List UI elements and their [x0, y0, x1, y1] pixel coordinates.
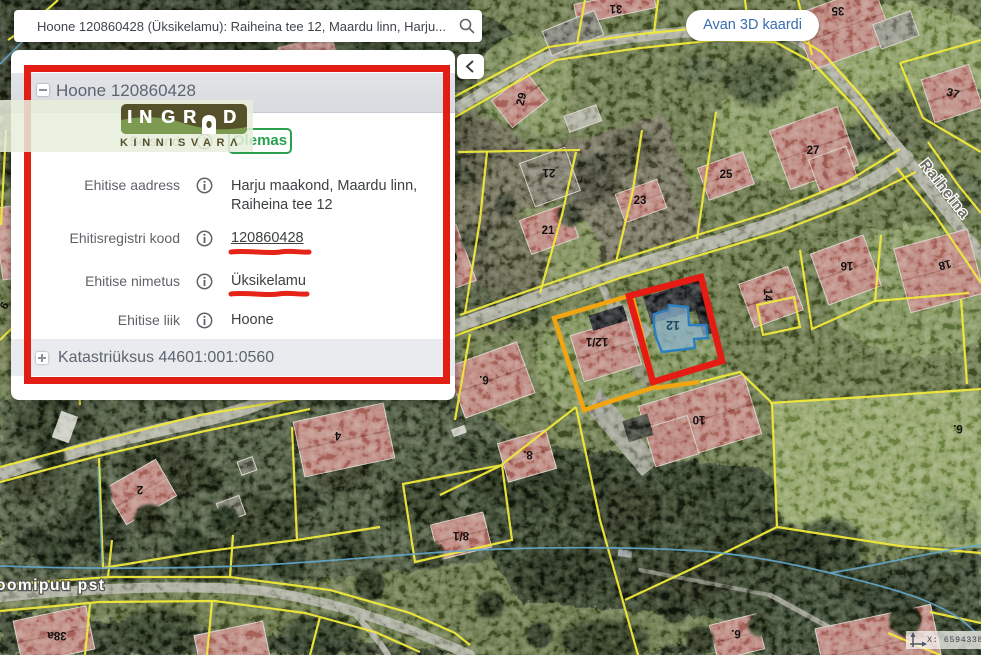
svg-text:8.: 8.	[523, 448, 533, 460]
svg-text:10: 10	[693, 413, 706, 425]
svg-text:21: 21	[542, 225, 555, 237]
svg-text:6.: 6.	[479, 373, 489, 385]
svg-text:6.: 6.	[731, 627, 741, 639]
svg-text:38a: 38a	[47, 629, 67, 641]
svg-text:14: 14	[761, 289, 773, 302]
svg-text:2: 2	[137, 483, 143, 495]
svg-text:23: 23	[634, 195, 647, 207]
svg-text:16: 16	[841, 259, 854, 271]
svg-text:25: 25	[720, 169, 733, 181]
svg-text:4: 4	[334, 429, 341, 441]
svg-text:6.: 6.	[953, 422, 963, 434]
svg-text:8/1: 8/1	[452, 529, 469, 541]
svg-text:oomipuu pst: oomipuu pst	[0, 577, 106, 594]
svg-text:12/1: 12/1	[585, 335, 608, 347]
svg-text:27: 27	[807, 145, 820, 157]
svg-text:35: 35	[831, 4, 844, 16]
svg-text:21: 21	[542, 166, 555, 178]
svg-text:31: 31	[609, 2, 622, 14]
svg-text:12: 12	[666, 318, 680, 332]
